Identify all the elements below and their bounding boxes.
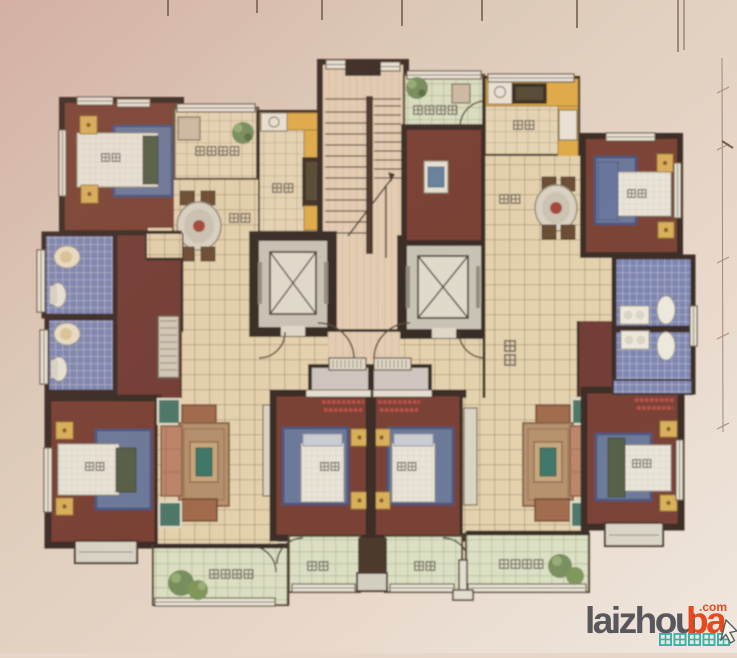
svg-text:.com: .com (699, 600, 727, 614)
